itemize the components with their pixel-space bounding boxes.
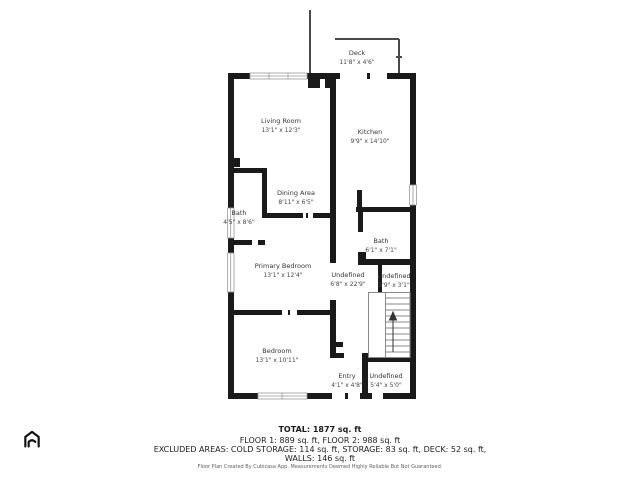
room-label-undefined-corridor: Undefined 6'8" x 22'9" [330,271,365,289]
entry-door-tick [345,393,348,399]
staircase [369,293,411,358]
room-label-kitchen: Kitchen 9'9" x 14'10" [350,128,389,146]
window [258,393,307,399]
room-label-entry: Entry 4'1" x 4'8" [331,372,362,390]
window [410,185,417,205]
room-label-bath-right: Bath 6'1" x 7'1" [365,237,396,255]
room-label-dining-area: Dining Area 8'11" x 6'5" [277,189,315,207]
room-label-undefined-bottom: Undefined 5'4" x 5'0" [369,372,402,390]
excluded-areas-text: EXCLUDED AREAS: COLD STORAGE: 114 sq. ft… [0,445,640,454]
floor-areas-text: FLOOR 1: 889 sq. ft, FLOOR 2: 988 sq. ft [0,436,640,445]
window [228,253,235,292]
room-label-bedroom: Bedroom 13'1" x 10'11" [256,347,299,365]
floor-plan-drawing [0,0,640,480]
room-label-deck: Deck 11'8" x 4'6" [339,49,374,67]
disclaimer-text: Floor Plan Created By Cubicasa App. Meas… [0,464,640,470]
window [250,73,307,79]
walls-area-text: WALLS: 146 sq. ft [0,454,640,463]
room-label-undefined-closet: Undefined 3'9" x 3'1" [377,272,410,290]
deck-door-tick [367,73,370,79]
room-label-bath-left: Bath 4'5" x 8'6" [223,209,254,227]
room-label-primary-bedroom: Primary Bedroom 13'1" x 12'4" [255,262,312,280]
floor-plan-page: Deck 11'8" x 4'6" Living Room 13'1" x 12… [0,0,640,480]
total-area-text: TOTAL: 1877 sq. ft [0,425,640,434]
cubicasa-logo [22,429,42,449]
room-label-living-room: Living Room 13'1" x 12'3" [261,117,301,135]
house-icon [25,432,38,447]
